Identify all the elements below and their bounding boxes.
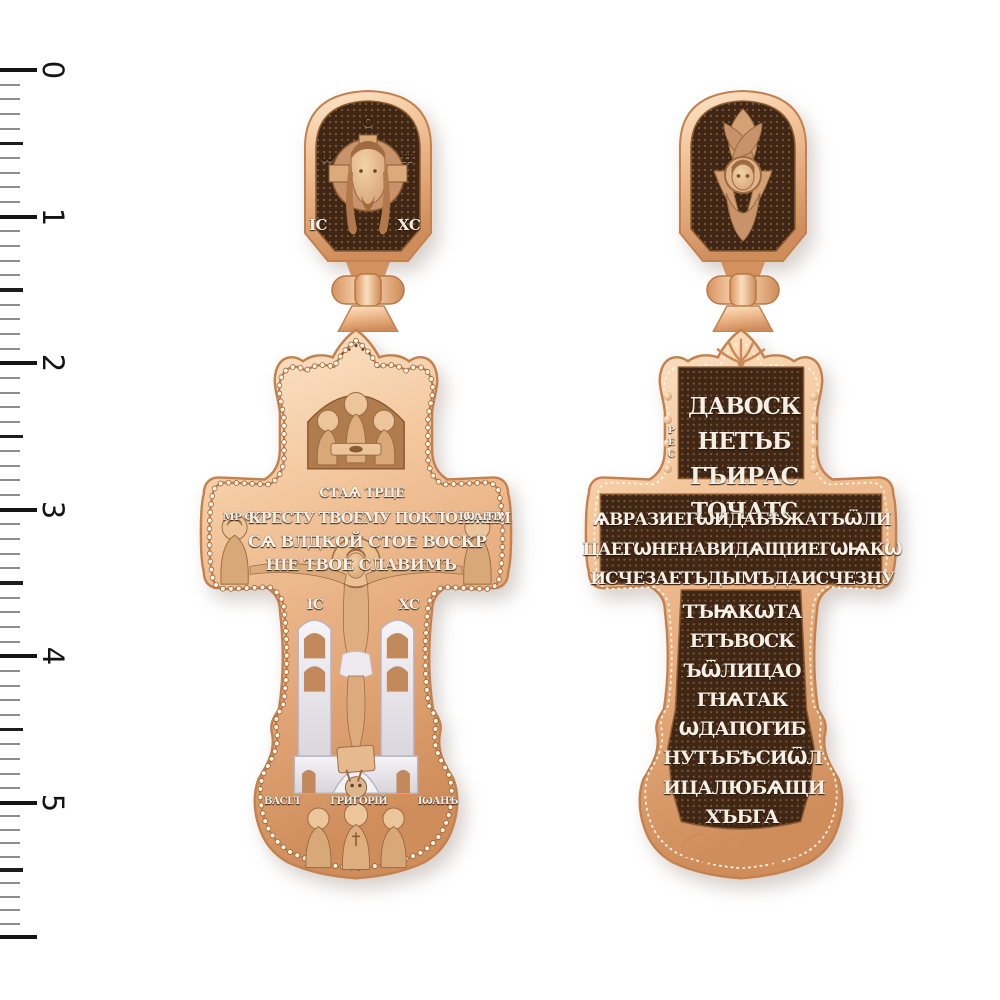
bail-back bbox=[666, 83, 820, 271]
ruler-number: 5 bbox=[36, 786, 70, 820]
ruler-tick bbox=[0, 815, 20, 817]
ruler-tick bbox=[0, 172, 20, 174]
ruler-tick bbox=[0, 611, 20, 613]
ruler-tick bbox=[0, 728, 23, 732]
ruler-tick bbox=[0, 896, 20, 898]
ruler-tick bbox=[0, 318, 20, 320]
ruler-tick bbox=[0, 654, 37, 658]
hinge-back bbox=[703, 262, 783, 332]
ruler-tick bbox=[0, 333, 20, 335]
ruler-tick bbox=[0, 685, 20, 687]
saint-label: ГРИГОРІЙ bbox=[330, 797, 387, 807]
prayer-small-column: РЕС bbox=[662, 425, 676, 461]
ruler-tick bbox=[0, 435, 23, 439]
ruler-tick bbox=[0, 567, 20, 569]
saint-label: ІѠАНЪ bbox=[418, 797, 458, 807]
inscription-line: ХЪБГА bbox=[663, 803, 821, 832]
inscription-line: НІЕ ТВОЕ СЛАВИМЪ bbox=[248, 553, 474, 576]
saint-label: ВАСІЛ bbox=[264, 797, 300, 807]
ruler-tick bbox=[0, 868, 23, 872]
inscription-line: ЪѾЛИЦАО bbox=[663, 657, 821, 686]
ruler-tick bbox=[0, 787, 20, 789]
ruler-tick bbox=[0, 842, 20, 844]
ruler-tick bbox=[0, 157, 20, 159]
inscription-line: ѦВРАЗИЕГѠИДАБѢЖАТЪѾЛИ bbox=[581, 506, 903, 536]
ruler-tick bbox=[0, 421, 20, 423]
nimbus-letter-o: О bbox=[357, 117, 379, 129]
inscription-line: ЕТЪВОСК bbox=[663, 627, 821, 656]
theotokos-icon bbox=[221, 515, 248, 584]
inscription-line: ТЪѨКѠТА bbox=[663, 598, 821, 627]
ruler-tick bbox=[0, 406, 20, 408]
ruler-tick bbox=[0, 758, 20, 760]
inscription-line: ГНѦТАК bbox=[663, 686, 821, 715]
ruler-tick bbox=[0, 274, 20, 276]
cross-front-body bbox=[198, 328, 514, 893]
ruler-tick bbox=[0, 465, 20, 467]
ruler-tick bbox=[0, 377, 20, 379]
ruler-tick bbox=[0, 288, 23, 292]
ruler-tick bbox=[0, 626, 20, 628]
ruler-tick bbox=[0, 450, 20, 452]
ruler-tick bbox=[0, 201, 20, 203]
product-photo: 012345 Ѡ О Н ІС ХС bbox=[0, 0, 1000, 1000]
ruler-tick bbox=[0, 508, 37, 512]
inscription-line: ДАВОСК bbox=[671, 389, 817, 424]
inscription-line: ИСЧЕЗАЕТЪДЫМЪДАИСЧЕЗНУ bbox=[581, 565, 903, 595]
ruler-number: 1 bbox=[36, 200, 70, 234]
ruler-tick bbox=[0, 84, 20, 86]
three-hierarchs-icon bbox=[306, 803, 406, 869]
ruler-tick bbox=[0, 392, 20, 394]
nimbus-letter-n: Н bbox=[396, 152, 418, 164]
ruler-tick bbox=[0, 801, 37, 805]
ruler-tick bbox=[0, 641, 20, 643]
bail-christogram-xc: ХС bbox=[396, 218, 422, 233]
ruler-tick bbox=[0, 923, 20, 925]
inscription-line: КРЕСТУ ТВОЕМУ ПОКЛОНѦЕМ bbox=[248, 507, 474, 530]
prayer-crossbar-block: ѦВРАЗИЕГѠИДАБѢЖАТЪѾЛИЦАЕГѠНЕНАВИДѦЩІИЕГѠ… bbox=[581, 506, 903, 595]
ruler-tick bbox=[0, 230, 20, 232]
ruler-tick bbox=[0, 479, 20, 481]
ruler-tick bbox=[0, 856, 20, 858]
ruler-tick bbox=[0, 714, 20, 716]
john-label: ІѠАНЪ bbox=[452, 512, 508, 523]
inscription-line: ѠДАПОГИБ bbox=[663, 715, 821, 744]
bail-christogram-ic: ІС bbox=[305, 218, 331, 233]
ruler-tick bbox=[0, 523, 20, 525]
ruler-tick bbox=[0, 494, 20, 496]
inscription-line: СѦ ВЛДКОЙ СТОЕ ВОСКР bbox=[248, 530, 474, 553]
ruler-tick bbox=[0, 68, 37, 72]
christogram-ic: ІС bbox=[298, 598, 332, 612]
adam-skull-icon bbox=[345, 777, 366, 799]
hinge-front bbox=[328, 262, 408, 332]
ruler-tick bbox=[0, 773, 20, 775]
ruler-tick bbox=[0, 113, 20, 115]
ruler-tick bbox=[0, 142, 23, 146]
ruler-number: 2 bbox=[36, 346, 70, 380]
crossbar-inscription: КРЕСТУ ТВОЕМУ ПОКЛОНѦЕМСѦ ВЛДКОЙ СТОЕ ВО… bbox=[248, 507, 474, 576]
ruler-tick bbox=[0, 670, 20, 672]
bail-front bbox=[291, 83, 445, 271]
ruler: 012345 bbox=[0, 0, 95, 1000]
prayer-bottom-block: ТЪѨКѠТАЕТЪВОСКЪѾЛИЦАОГНѦТАКѠДАПОГИБНУТЪБ… bbox=[663, 598, 821, 832]
ruler-tick bbox=[0, 304, 20, 306]
ruler-tick bbox=[0, 348, 20, 350]
inscription-line: НУТЪБѢСИѾЛ bbox=[663, 744, 821, 773]
christogram-xc: ХС bbox=[392, 598, 426, 612]
inscription-line: НЕТЪБ bbox=[671, 424, 817, 459]
ruler-tick bbox=[0, 581, 23, 585]
ruler-tick bbox=[0, 538, 20, 540]
ruler-tick bbox=[0, 98, 20, 100]
ruler-tick bbox=[0, 245, 20, 247]
ruler-tick bbox=[0, 935, 37, 939]
ruler-tick bbox=[0, 829, 20, 831]
ruler-tick bbox=[0, 882, 20, 884]
ruler-tick bbox=[0, 215, 37, 219]
inscription-line: ИЦАЛЮБѦЩИ bbox=[663, 774, 821, 803]
ruler-tick bbox=[0, 553, 20, 555]
ruler-tick bbox=[0, 260, 20, 262]
ruler-number: 0 bbox=[36, 53, 70, 87]
trinity-caption: СТАѦ ТРЦЕ bbox=[295, 487, 429, 500]
ruler-tick bbox=[0, 186, 20, 188]
ruler-tick bbox=[0, 128, 20, 130]
ruler-tick bbox=[0, 597, 20, 599]
ruler-tick bbox=[0, 361, 37, 365]
ruler-tick bbox=[0, 699, 20, 701]
nimbus-letter-omega: Ѡ bbox=[316, 152, 338, 164]
ruler-tick bbox=[0, 909, 20, 911]
inscription-line: ЦАЕГѠНЕНАВИДѦЩІИЕГѠѨКѠ bbox=[581, 536, 903, 566]
inscription-line: ГЪИРАС bbox=[671, 459, 817, 494]
ruler-number: 3 bbox=[36, 493, 70, 527]
saint-labels: ВАСІЛГРИГОРІЙІѠАНЪ bbox=[264, 797, 458, 807]
ruler-tick bbox=[0, 743, 20, 745]
ruler-number: 4 bbox=[36, 639, 70, 673]
